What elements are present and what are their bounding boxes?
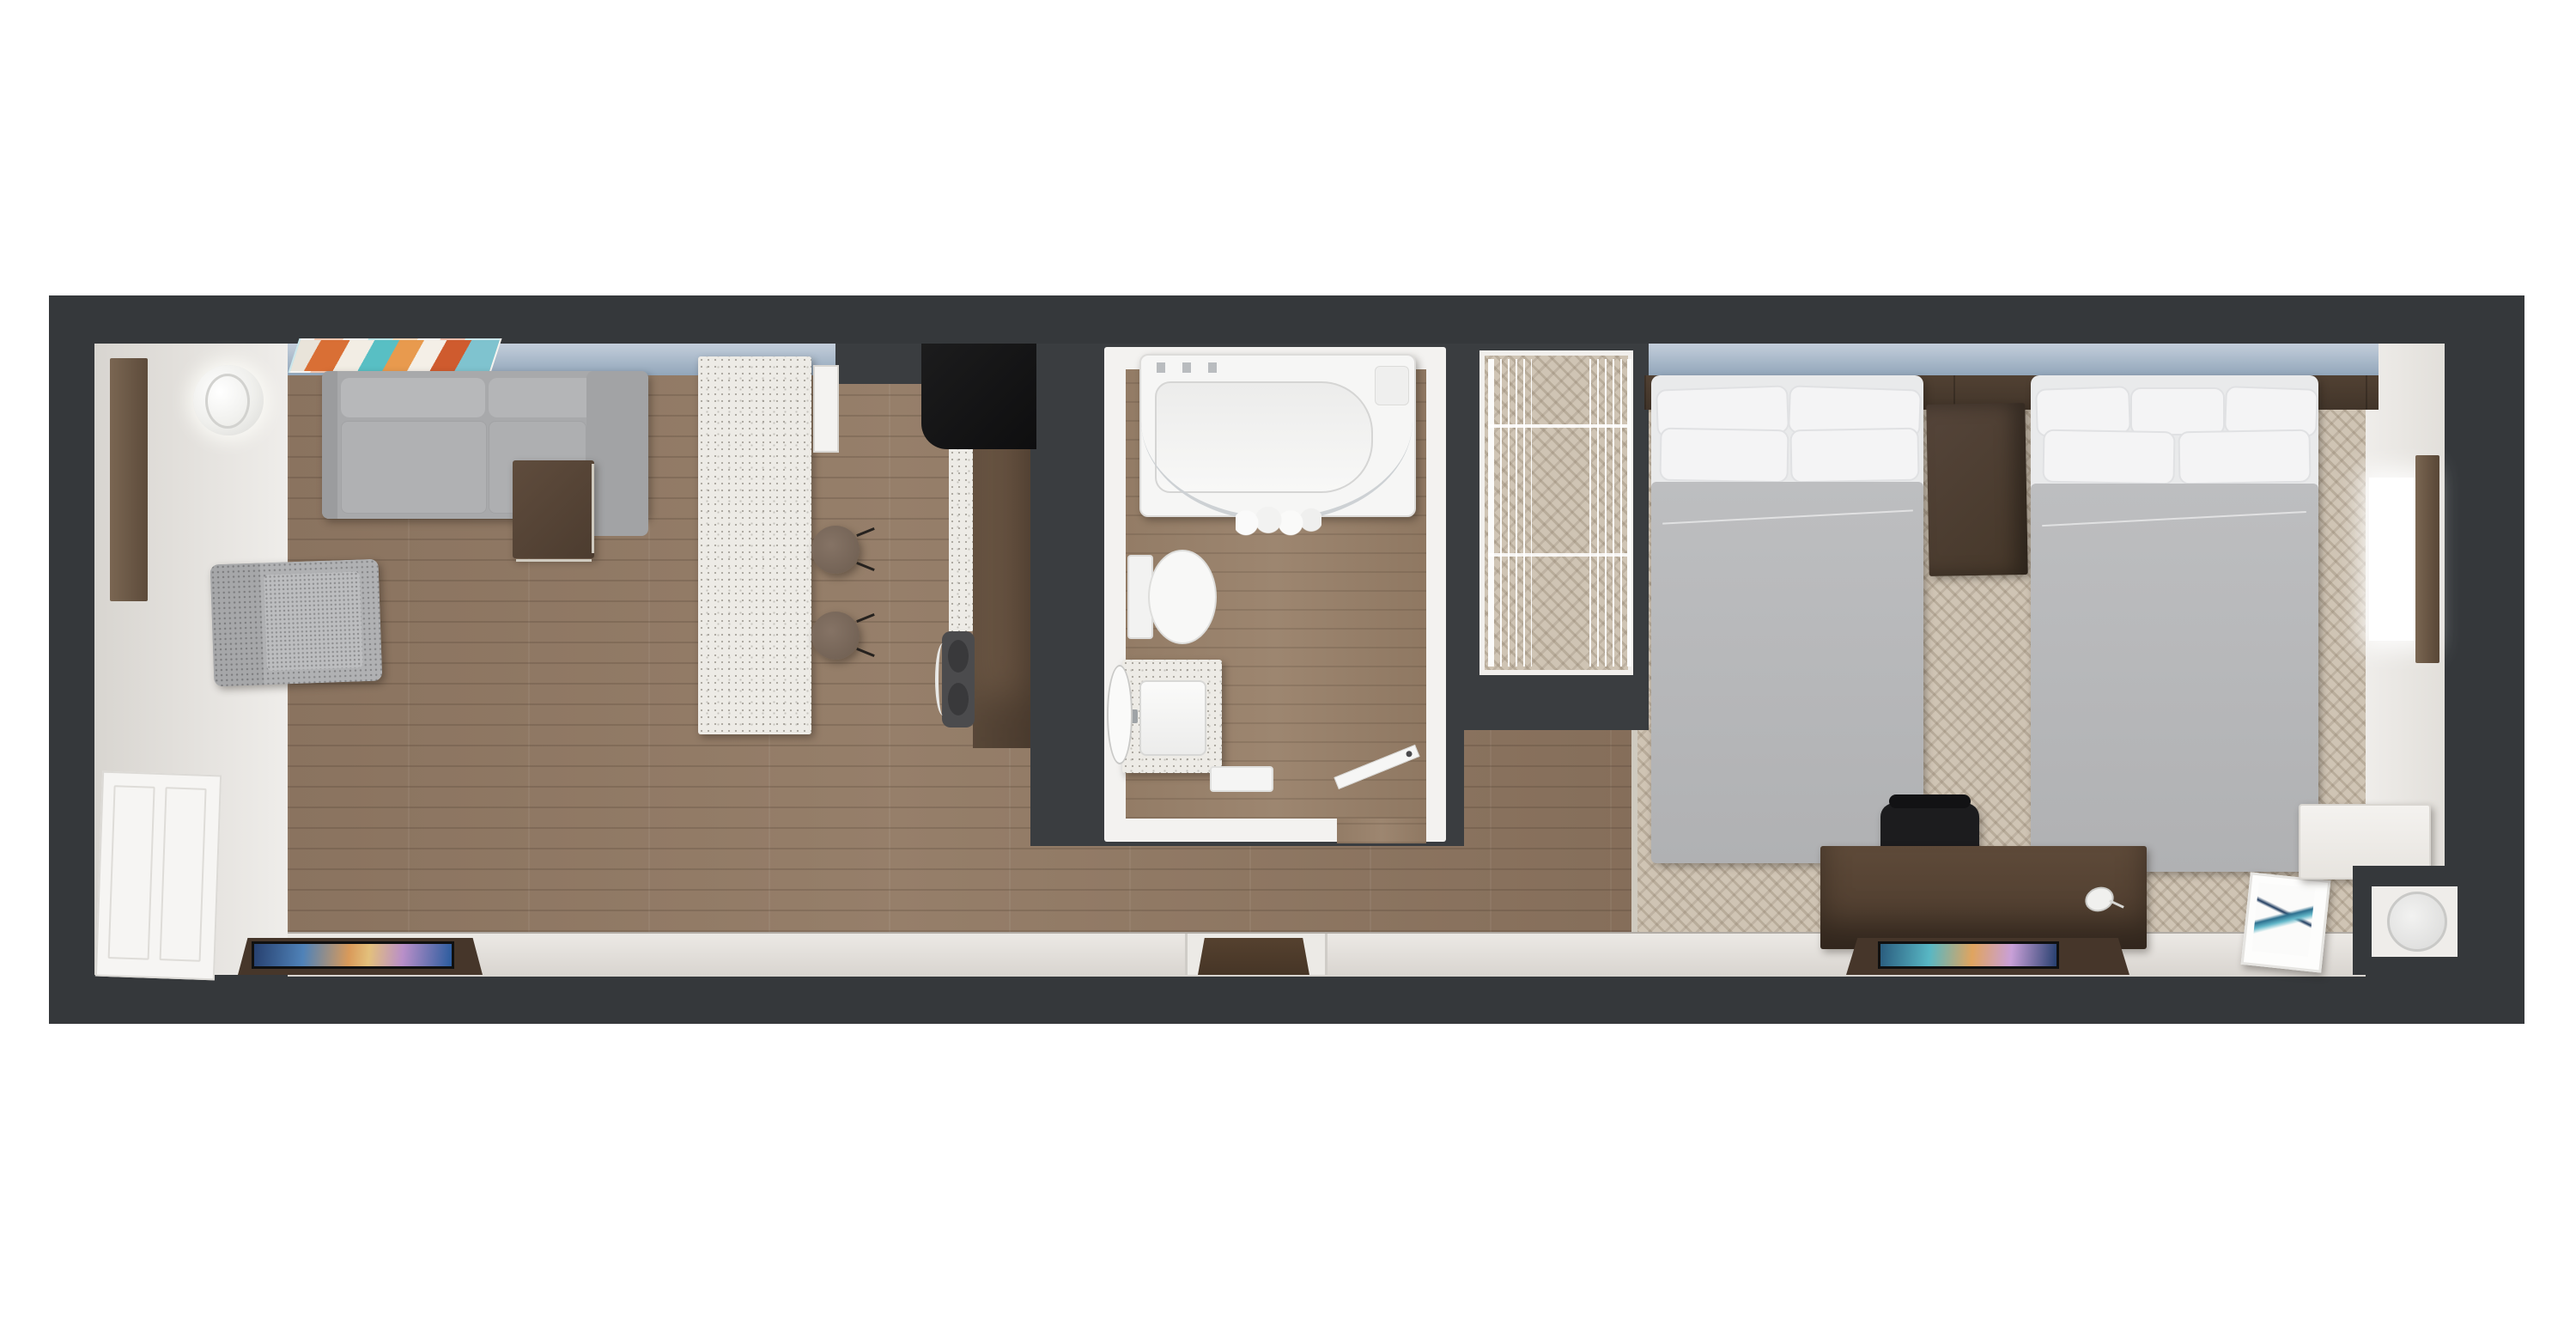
desk (1820, 846, 2147, 949)
bathtub-faucet (1157, 362, 1234, 373)
framed-art-image (2251, 882, 2315, 956)
sink-basin (948, 683, 969, 715)
door-handle (1405, 750, 1413, 758)
kitchen-wall-cabinet (813, 365, 839, 453)
left-wall-mirror (110, 358, 148, 601)
side-table-leg (516, 559, 592, 562)
floor-plan (49, 295, 2524, 1024)
vanity-sink (1122, 660, 1222, 773)
duvet-fold (1662, 509, 1912, 524)
mini-fridge (2387, 892, 2447, 952)
chair-back (210, 563, 264, 686)
duvet (1651, 482, 1923, 863)
toilet (1127, 550, 1215, 641)
sofa-arm-left (322, 371, 337, 519)
leaning-mirror (1107, 665, 1133, 764)
duvet (2031, 484, 2318, 872)
bar-stool-1 (811, 526, 860, 574)
duvet-fold (2043, 511, 2307, 527)
bathroom-door-opening (1337, 819, 1426, 843)
fridge-niche (2353, 866, 2477, 975)
closet-wire-shelving-right (1589, 359, 1631, 667)
vanity-basin (1139, 680, 1206, 756)
lamp-ring (205, 374, 250, 429)
closet-door-panel (160, 787, 207, 962)
desk-accessory (2081, 883, 2117, 916)
bar-stool-2 (811, 612, 860, 660)
kitchen-island (698, 356, 811, 734)
window-wall-bedroom (1631, 344, 2379, 375)
accent-chair (210, 559, 383, 687)
pillow (2178, 429, 2311, 485)
towel (1210, 766, 1273, 792)
side-table-leg (592, 464, 594, 553)
pillow (1659, 428, 1789, 484)
pillow (2042, 429, 2175, 485)
sink-faucet (935, 643, 951, 715)
floor-lamp (193, 365, 264, 435)
side-table (513, 460, 594, 558)
right-wall-mirror (2415, 455, 2439, 663)
sink-basin (948, 640, 969, 673)
counter-run-cabinets (973, 449, 1030, 748)
counter-run-top (949, 449, 973, 631)
nightstand (1926, 403, 2027, 576)
pillow (2130, 387, 2225, 435)
screenshot-canvas (0, 0, 2576, 1321)
bathtub-shelf (1375, 366, 1409, 405)
sectional-sofa (322, 371, 648, 519)
bed-2 (2031, 375, 2318, 872)
wall-art (289, 338, 502, 373)
bed-1 (1651, 375, 1923, 863)
chair-seat (264, 571, 363, 671)
sofa-chaise (586, 371, 648, 536)
sofa-back-cushion (341, 378, 485, 417)
bedroom-tv (1878, 941, 2059, 969)
living-tv (252, 941, 454, 969)
closet-door-panel (108, 785, 155, 960)
closet-doors (95, 771, 222, 981)
closet-wire-shelving-left (1488, 359, 1532, 667)
pillow (1789, 428, 1919, 484)
closet-shelf-bar (1488, 424, 1627, 428)
shower-curtain (1236, 507, 1321, 536)
chair-back-bar (1889, 794, 1971, 808)
kitchen-sink (942, 631, 975, 727)
entry-door-mat (1198, 938, 1309, 975)
toilet-bowl (1148, 550, 1217, 644)
framed-art (2241, 872, 2331, 972)
sofa-seat-cushion (341, 421, 487, 514)
black-counter (921, 344, 1036, 449)
closet-shelf-bar (1488, 553, 1627, 557)
